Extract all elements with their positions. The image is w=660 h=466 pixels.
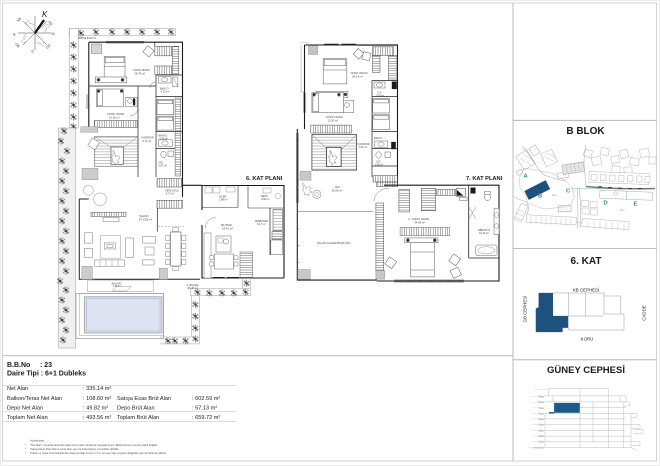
- svg-text:"Net Alan"; duvarlar arasında: "Net Alan"; duvarlar arasında kalan temi…: [30, 443, 158, 447]
- svg-text:5.kat: 5.kat: [538, 418, 544, 421]
- svg-text:: 108.60 m²: : 108.60 m²: [83, 396, 111, 402]
- svg-text:BANYO: BANYO: [374, 137, 383, 140]
- svg-text:B: B: [538, 194, 542, 200]
- svg-text:10.16 m²: 10.16 m²: [479, 232, 489, 235]
- svg-text:1.08 m²: 1.08 m²: [113, 285, 121, 288]
- svg-text:: 49.82 m²: : 49.82 m²: [83, 405, 108, 411]
- svg-text:Daire Tipi : 6+1 Dubleks: Daire Tipi : 6+1 Dubleks: [7, 371, 86, 378]
- svg-text:5.17 m²: 5.17 m²: [257, 223, 266, 226]
- svg-text:3.kat: 3.kat: [538, 429, 544, 432]
- svg-text:: 493.56 m²: : 493.56 m²: [83, 415, 111, 421]
- svg-text:30.08 m²: 30.08 m²: [332, 188, 343, 192]
- svg-text:67.2CB m²: 67.2CB m²: [139, 217, 152, 221]
- svg-text:koru: koru: [620, 209, 625, 212]
- svg-text:12.50 m²: 12.50 m²: [327, 118, 338, 122]
- svg-text:6.72 m²: 6.72 m²: [166, 192, 174, 195]
- svg-text:1.kat: 1.kat: [538, 441, 544, 444]
- svg-text:4.kat: 4.kat: [538, 424, 544, 427]
- svg-text:KB CEPHESİ: KB CEPHESİ: [573, 288, 599, 293]
- svg-text:18.41 m²: 18.41 m²: [222, 227, 233, 231]
- svg-text:"Satışa Esas Brüt Alan"a ortak: "Satışa Esas Brüt Alan"a ortak alan payı…: [30, 447, 119, 451]
- svg-text:HOL: HOL: [335, 185, 341, 189]
- svg-text:2.98 m²: 2.98 m²: [219, 199, 228, 202]
- svg-text:: 335.14 m²: : 335.14 m²: [83, 386, 111, 392]
- svg-text:Balkon/Teras Net Alan: Balkon/Teras Net Alan: [7, 396, 62, 402]
- svg-text:Toplam Brüt Alan: Toplam Brüt Alan: [117, 415, 159, 421]
- svg-text:Açıklamalar:: Açıklamalar:: [30, 439, 45, 443]
- svg-text:*: *: [25, 443, 26, 447]
- svg-text:C. YATAK ODASI: C. YATAK ODASI: [408, 217, 429, 221]
- svg-text:6.72 m²: 6.72 m²: [143, 139, 152, 143]
- svg-text:: 57.13 m²: : 57.13 m²: [192, 405, 217, 411]
- svg-text:4.80 m²: 4.80 m²: [261, 198, 270, 201]
- svg-text:B.B.No: B.B.No: [7, 362, 30, 369]
- svg-text:2.50 m²: 2.50 m²: [375, 163, 383, 166]
- svg-text:2.kat: 2.kat: [538, 435, 544, 438]
- svg-text:YATAK ODASI: YATAK ODASI: [350, 71, 368, 75]
- svg-text:7. KAT PLANI: 7. KAT PLANI: [466, 176, 503, 182]
- svg-text:12.50 m²: 12.50 m²: [109, 115, 120, 119]
- svg-text:GÜNEY CEPHESİ: GÜNEY CEPHESİ: [547, 365, 625, 376]
- svg-text:B BLOK: B BLOK: [566, 126, 605, 137]
- svg-text:Toplam Net Alan: Toplam Net Alan: [7, 415, 48, 421]
- svg-text:8.kat: 8.kat: [538, 401, 544, 404]
- svg-text:YATAK ODASI: YATAK ODASI: [133, 68, 151, 72]
- svg-text:6. KAT: 6. KAT: [571, 256, 602, 267]
- svg-text:7.00 m²: 7.00 m²: [359, 145, 368, 149]
- svg-text:28.78 m²: 28.78 m²: [135, 71, 146, 75]
- svg-text:zemin kat: zemin kat: [533, 446, 544, 449]
- svg-text:3.BAHÇE 84.62 m²: 3.BAHÇE 84.62 m²: [77, 37, 97, 40]
- svg-text:7.kat: 7.kat: [538, 407, 544, 410]
- svg-text:koru: koru: [552, 194, 557, 197]
- svg-text:2.87 m²: 2.87 m²: [158, 165, 167, 168]
- svg-text:6. KAT PLANI: 6. KAT PLANI: [246, 176, 283, 182]
- svg-text:4.25 m²: 4.25 m²: [161, 91, 170, 94]
- svg-text:CADDE: CADDE: [642, 305, 647, 320]
- svg-text:9.kat: 9.kat: [538, 395, 544, 398]
- svg-text:*: *: [25, 451, 26, 455]
- svg-text:3.65 m²: 3.65 m²: [159, 137, 168, 140]
- svg-text:: 659.72 m²: : 659.72 m²: [192, 415, 220, 421]
- svg-text:E: E: [634, 202, 638, 208]
- svg-text:1.80 m²: 1.80 m²: [376, 94, 384, 97]
- svg-text:28.14 m²: 28.14 m²: [352, 74, 363, 78]
- svg-text:GB CEPHESİ: GB CEPHESİ: [523, 296, 528, 323]
- svg-text:: 23: : 23: [40, 362, 52, 369]
- svg-text:34.99 m²: 34.99 m²: [414, 220, 425, 224]
- svg-text:6.kat: 6.kat: [538, 413, 544, 416]
- svg-text:Depo Net Alan: Depo Net Alan: [7, 405, 43, 411]
- svg-text:: 602.59 m²: : 602.59 m²: [192, 396, 220, 402]
- svg-text:K: K: [42, 10, 48, 19]
- svg-text:*: *: [25, 447, 26, 451]
- svg-text:KORU: KORU: [581, 337, 594, 342]
- svg-text:D: D: [604, 201, 608, 207]
- svg-text:Depo Brüt Alan: Depo Brüt Alan: [117, 405, 155, 411]
- svg-text:Teknik ve yasal zorunluluklard: Teknik ve yasal zorunluluklardan dolayı …: [30, 451, 167, 455]
- svg-text:Net Alan: Net Alan: [7, 386, 28, 392]
- svg-text:Satışa Esas Brüt Alan: Satışa Esas Brüt Alan: [117, 396, 171, 402]
